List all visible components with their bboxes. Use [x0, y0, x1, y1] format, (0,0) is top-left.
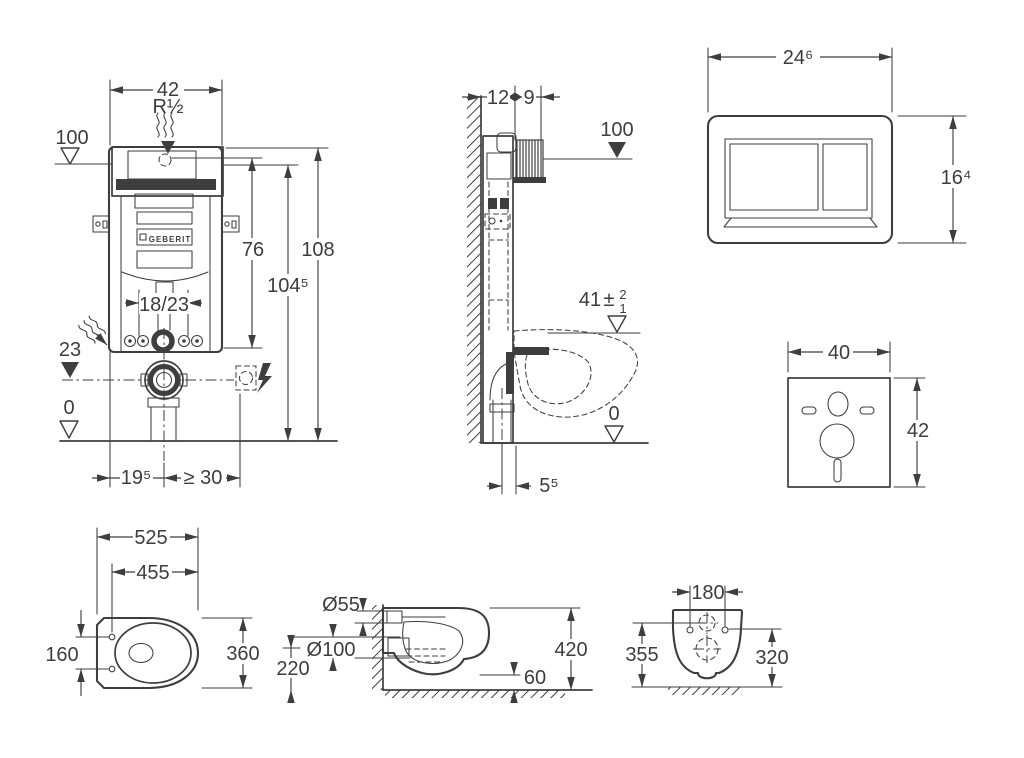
foot-bracket-left: [125, 336, 149, 347]
pan-rear-view: 180 355 320: [625, 582, 789, 695]
dim-mat-height: 42: [907, 420, 929, 442]
dim-offset-19: 19⁵: [121, 467, 152, 489]
dim-rail-spacing: 18/23: [139, 294, 189, 316]
dim-rear-height-355: 355: [625, 644, 658, 666]
pan-side-view: Ø55 Ø100 220 60 420: [276, 594, 592, 703]
dim-height-104: 104⁵: [267, 275, 309, 297]
geberit-logo: GEBERIT: [149, 235, 192, 244]
dim-mat-width: 40: [828, 342, 850, 364]
level-0-marker: [60, 421, 78, 438]
cistern-side-view: 12 9 100 41 ± 2 1: [462, 86, 648, 497]
dim-outlet-height: 220: [276, 658, 309, 680]
flush-plate-view: 24⁶ 16⁴: [708, 46, 976, 243]
dim-rear-hole-spacing: 180: [691, 582, 724, 604]
foot-bracket-right: [179, 336, 203, 347]
dim-pan-depth: 455: [136, 562, 169, 584]
wall-bracket-left: [93, 216, 109, 232]
dim-plate-height: 16⁴: [941, 167, 972, 189]
level-23-marker: [61, 362, 79, 378]
technical-drawing-canvas: 42 R½ 100: [0, 0, 1024, 758]
flush-plate-protection-box: [516, 140, 543, 180]
level-0-label: 0: [63, 397, 74, 419]
side-level-100-label: 100: [600, 119, 633, 141]
wall-bracket-right: [222, 216, 239, 232]
installation-drawing: 42 R½ 100: [0, 0, 1024, 758]
level-100-marker: [61, 148, 79, 164]
dim-inlet-diameter: Ø55: [322, 594, 360, 616]
dim-offset-30: ≥ 30: [184, 467, 223, 489]
flush-button-small: [823, 144, 867, 210]
pan-wall-hatch: [372, 605, 383, 690]
electric-bolt-icon: [257, 363, 272, 393]
pan-floor-hatch: [385, 690, 565, 698]
seat-height-pm: ±: [604, 289, 615, 311]
seat-height-label: 41: [579, 289, 601, 311]
wall-hatch: [467, 96, 481, 443]
flush-button-large: [730, 144, 818, 210]
level-23-label: 23: [59, 339, 81, 361]
dim-height-76: 76: [242, 239, 264, 261]
dim-pan-hole-spacing: 160: [45, 644, 78, 666]
cistern-front-view: 42 R½ 100: [55, 79, 337, 489]
dim-depth-12: 12: [487, 87, 509, 109]
dim-pan-height: 420: [554, 639, 587, 661]
pan-top-view: 525 455 160 360: [45, 526, 260, 696]
seat-height-tol-plus: 2: [619, 287, 626, 302]
sound-insulation-mat-view: 40 42: [788, 341, 932, 487]
dim-outlet-diameter: Ø100: [307, 639, 356, 661]
dim-pan-width: 360: [226, 643, 259, 665]
dim-offset-5: 5⁵: [539, 475, 558, 497]
dim-depth-9: 9: [523, 87, 534, 109]
dim-rear-height-320: 320: [755, 647, 788, 669]
side-level-100-marker: [608, 142, 626, 158]
side-level-0-label: 0: [608, 403, 619, 425]
dim-pan-length: 525: [134, 527, 167, 549]
side-level-0-marker: [605, 426, 623, 442]
dim-height-108: 108: [301, 239, 334, 261]
level-100-label: 100: [55, 127, 88, 149]
dim-bowl-clearance: 60: [524, 667, 546, 689]
seat-height-marker: [608, 316, 626, 332]
seat-height-tol-minus: 1: [619, 301, 626, 316]
dim-plate-width: 24⁶: [783, 47, 813, 69]
rear-floor-hatch: [668, 687, 742, 695]
